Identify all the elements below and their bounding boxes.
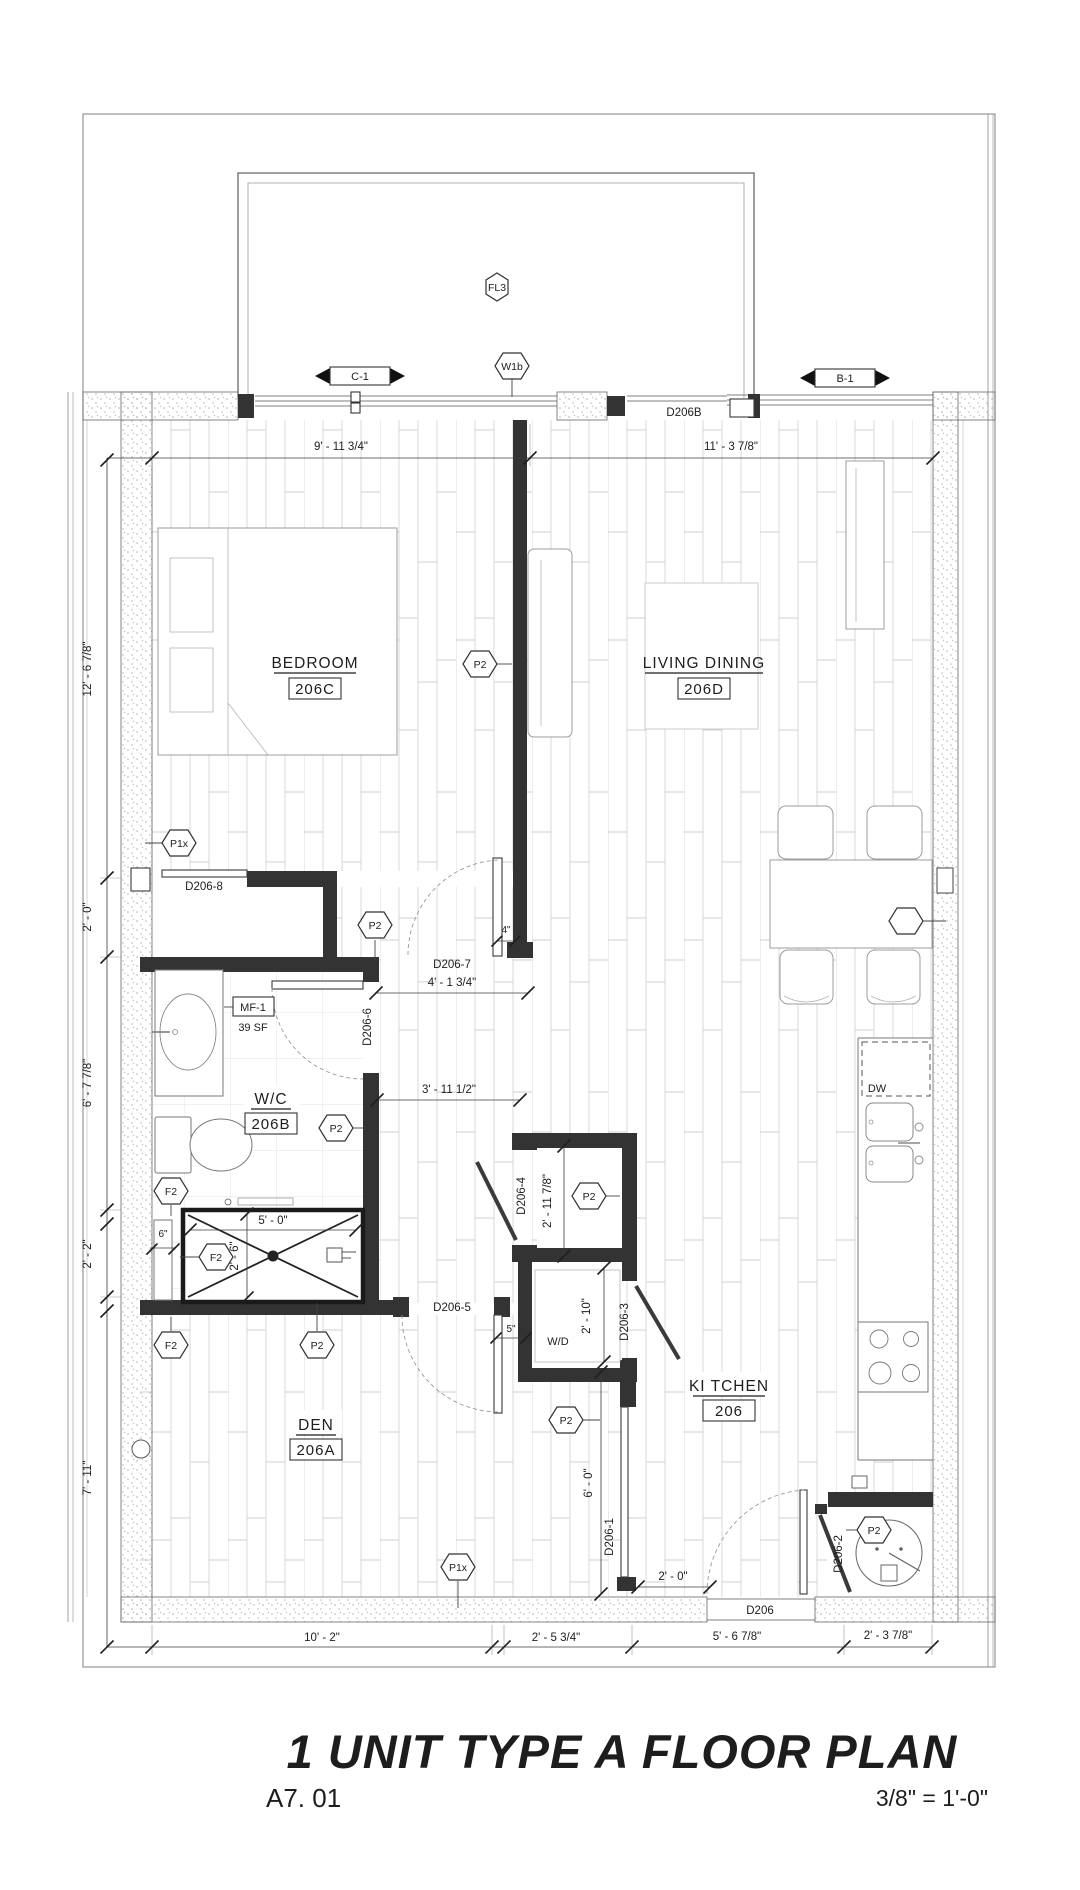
tag-f2-label: F2 xyxy=(165,1340,177,1352)
tag-f2-label: F2 xyxy=(165,1186,177,1198)
label-d206-2: D206-2 xyxy=(833,1535,845,1573)
bedroom-living-wall xyxy=(513,420,527,942)
label-d206-5: D206-5 xyxy=(433,1302,471,1314)
door-jamb xyxy=(512,1133,537,1150)
dim-kitchen-hall: 6' - 0" xyxy=(583,1468,595,1497)
dining-chair xyxy=(778,806,833,859)
sheet-number: A7. 01 xyxy=(266,1783,341,1813)
tag-f2-label: F2 xyxy=(210,1252,222,1264)
label-d206b: D206B xyxy=(666,407,701,419)
title-block: 1 UNIT TYPE A FLOOR PLAN A7. 01 3/8" = 1… xyxy=(266,1725,988,1813)
tag-p2-label: P2 xyxy=(583,1191,596,1203)
door-jamb xyxy=(363,957,379,982)
south-wall-segment xyxy=(121,1597,707,1622)
north-wall-segment xyxy=(83,392,238,420)
tag-p2-label: P2 xyxy=(330,1123,343,1135)
door-jamb xyxy=(494,1297,510,1317)
label-d206: D206 xyxy=(746,1605,774,1617)
door-jamb xyxy=(815,1504,827,1514)
wall-jamb xyxy=(238,394,254,418)
dim-curb: 6" xyxy=(158,1229,168,1240)
dim-closet-depth: 2' - 11 7/8" xyxy=(542,1174,554,1228)
living-name: LIVING DINING xyxy=(643,655,765,672)
bed xyxy=(158,528,397,755)
tag-p2-label: P2 xyxy=(369,920,382,932)
washer-dryer-label: W/D xyxy=(547,1336,568,1348)
bedroom-south-wall xyxy=(247,871,337,887)
door-jamb xyxy=(512,1245,537,1262)
toilet-bowl xyxy=(190,1119,252,1171)
dishwasher-label: DW xyxy=(868,1083,887,1095)
wc-east-wall xyxy=(363,1073,379,1302)
floor-plan-drawing: 9' - 11 3/4" 11' - 3 7/8" 12' - 6 7/8" 2… xyxy=(0,0,1080,1890)
wh-closet-north-wall xyxy=(828,1492,933,1507)
north-wall-pier xyxy=(557,392,607,420)
tag-b1: B-1 xyxy=(800,369,890,387)
shower-drain xyxy=(268,1251,279,1262)
label-d206-7: D206-7 xyxy=(433,959,471,971)
tag-p1x-label: P1x xyxy=(449,1562,468,1574)
dim-bottom-1: 10' - 2" xyxy=(304,1632,340,1644)
east-exterior-wall xyxy=(933,392,958,1622)
dim-bottom-3: 5' - 6 7/8" xyxy=(713,1631,761,1643)
drawing-title: 1 UNIT TYPE A FLOOR PLAN xyxy=(287,1725,958,1778)
tag-p2-label: P2 xyxy=(311,1340,324,1352)
dim-stub: 5" xyxy=(506,1324,516,1335)
tag-c1-label: C-1 xyxy=(351,371,369,383)
room-label-wc: W/C 206B xyxy=(243,1086,301,1134)
dim-left-5: 7' - 11" xyxy=(82,1461,94,1496)
wd-closet-west-wall xyxy=(518,1262,532,1382)
tag-fl3: FL3 xyxy=(486,273,508,301)
west-exterior-wall xyxy=(121,392,152,1622)
drawing-scale: 3/8" = 1'-0" xyxy=(876,1785,988,1811)
wc-area-label: 39 SF xyxy=(238,1022,268,1034)
label-d206-6: D206-6 xyxy=(362,1008,374,1046)
bedroom-name: BEDROOM xyxy=(271,655,358,672)
vanity xyxy=(155,970,223,1096)
door-jamb xyxy=(617,1577,636,1591)
label-d206-8: D206-8 xyxy=(185,881,223,893)
den-number: 206A xyxy=(296,1442,335,1459)
door-jamb xyxy=(622,1262,637,1281)
range xyxy=(858,1322,928,1392)
bedroom-south-stub xyxy=(323,887,337,961)
wd-closet-floor xyxy=(532,1262,622,1368)
console xyxy=(846,461,884,629)
tag-p1x-label: P1x xyxy=(170,838,189,850)
living-number: 206D xyxy=(684,681,724,698)
wall-recess-box xyxy=(937,868,953,893)
kitchen-number: 206 xyxy=(715,1403,743,1420)
dim-left-4: 2' - 2" xyxy=(82,1239,94,1268)
dim-hall-lower: 3' - 11 1/2" xyxy=(422,1084,476,1096)
wd-closet-south-wall xyxy=(518,1368,637,1382)
door-jamb xyxy=(393,1297,409,1317)
hall-lower-floor xyxy=(363,958,527,1303)
dining-chair xyxy=(867,806,922,859)
wc-number: 206B xyxy=(251,1116,290,1133)
dim-bedroom-width: 9' - 11 3/4" xyxy=(314,441,368,453)
dim-hall-upper: 4' - 1 3/4" xyxy=(428,977,476,989)
sofa xyxy=(528,549,572,737)
tag-mf1-label: MF-1 xyxy=(240,1002,266,1014)
dim-left-2: 2' - 0" xyxy=(82,902,94,931)
dining-table xyxy=(770,860,932,948)
shower-head xyxy=(327,1248,342,1262)
tag-fl3-label: FL3 xyxy=(488,282,506,294)
tag-b1-label: B-1 xyxy=(836,373,853,385)
dining-chair xyxy=(867,950,920,1004)
label-d206-1: D206-1 xyxy=(604,1518,616,1556)
tag-c1: C-1 xyxy=(315,367,405,385)
kitchen-name: KI TCHEN xyxy=(689,1378,769,1395)
floor-plan-sheet: 9' - 11 3/4" 11' - 3 7/8" 12' - 6 7/8" 2… xyxy=(0,0,1080,1890)
wall-jamb xyxy=(607,396,625,416)
tag-w1b-label: W1b xyxy=(501,361,523,373)
toilet-tank xyxy=(155,1117,191,1173)
dim-bottom-4: 2' - 3 7/8" xyxy=(864,1630,912,1642)
cabinet-end xyxy=(852,1476,867,1488)
bedroom-number: 206C xyxy=(295,681,335,698)
tag-p2-label: P2 xyxy=(474,659,487,671)
wc-name: W/C xyxy=(254,1091,287,1108)
north-wall-segment xyxy=(933,392,995,420)
window-mullion xyxy=(351,403,360,413)
kitchen-counter-area xyxy=(858,1038,933,1460)
label-d206-4: D206-4 xyxy=(516,1177,528,1215)
dim-living-width: 11' - 3 7/8" xyxy=(704,441,758,453)
dim-left-1: 12' - 6 7/8" xyxy=(82,642,94,697)
label-d206-3: D206-3 xyxy=(619,1303,631,1341)
window-mullion xyxy=(351,392,360,402)
den-name: DEN xyxy=(298,1417,334,1434)
south-wall-segment xyxy=(815,1597,995,1622)
dim-door-gap: 4" xyxy=(501,925,511,936)
wall-column xyxy=(132,1440,150,1458)
dim-entry: 2' - 0" xyxy=(658,1571,687,1583)
door-d206-1 xyxy=(621,1407,628,1577)
dim-wd-depth: 2' - 10" xyxy=(581,1298,593,1334)
dim-bottom-2: 2' - 5 3/4" xyxy=(532,1632,580,1644)
dim-shower-width: 5' - 0" xyxy=(258,1215,287,1227)
shower xyxy=(154,1198,363,1302)
tag-p2-label: P2 xyxy=(560,1415,573,1427)
dim-left-3: 6' - 7 7/8" xyxy=(82,1059,94,1107)
room-label-den: DEN 206A xyxy=(290,1410,342,1460)
tag-w1b: W1b xyxy=(495,353,529,397)
tag-p2-label: P2 xyxy=(868,1525,881,1537)
kitchen-west-wall xyxy=(620,1360,636,1407)
dining-chair xyxy=(780,950,833,1004)
